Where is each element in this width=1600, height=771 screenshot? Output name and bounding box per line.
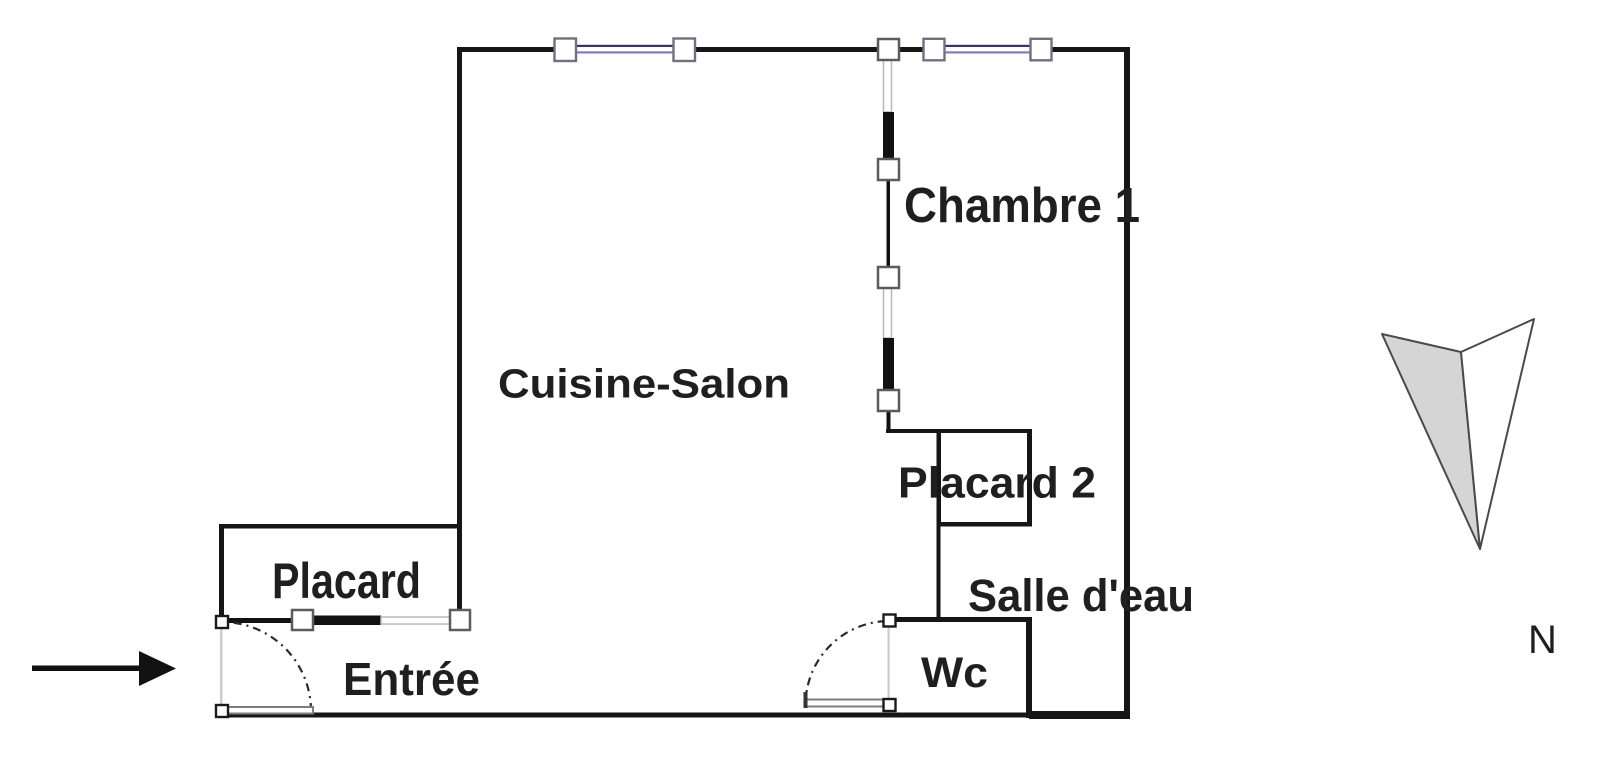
svg-text:Chambre 1: Chambre 1 xyxy=(904,179,1140,233)
svg-text:Cuisine-Salon: Cuisine-Salon xyxy=(498,361,790,407)
svg-text:Placard 2: Placard 2 xyxy=(898,459,1096,508)
svg-text:Salle d'eau: Salle d'eau xyxy=(968,570,1194,621)
svg-text:N: N xyxy=(1528,618,1557,662)
svg-text:Wc: Wc xyxy=(921,650,988,697)
svg-text:Placard: Placard xyxy=(272,553,421,609)
svg-text:Entrée: Entrée xyxy=(343,653,480,705)
